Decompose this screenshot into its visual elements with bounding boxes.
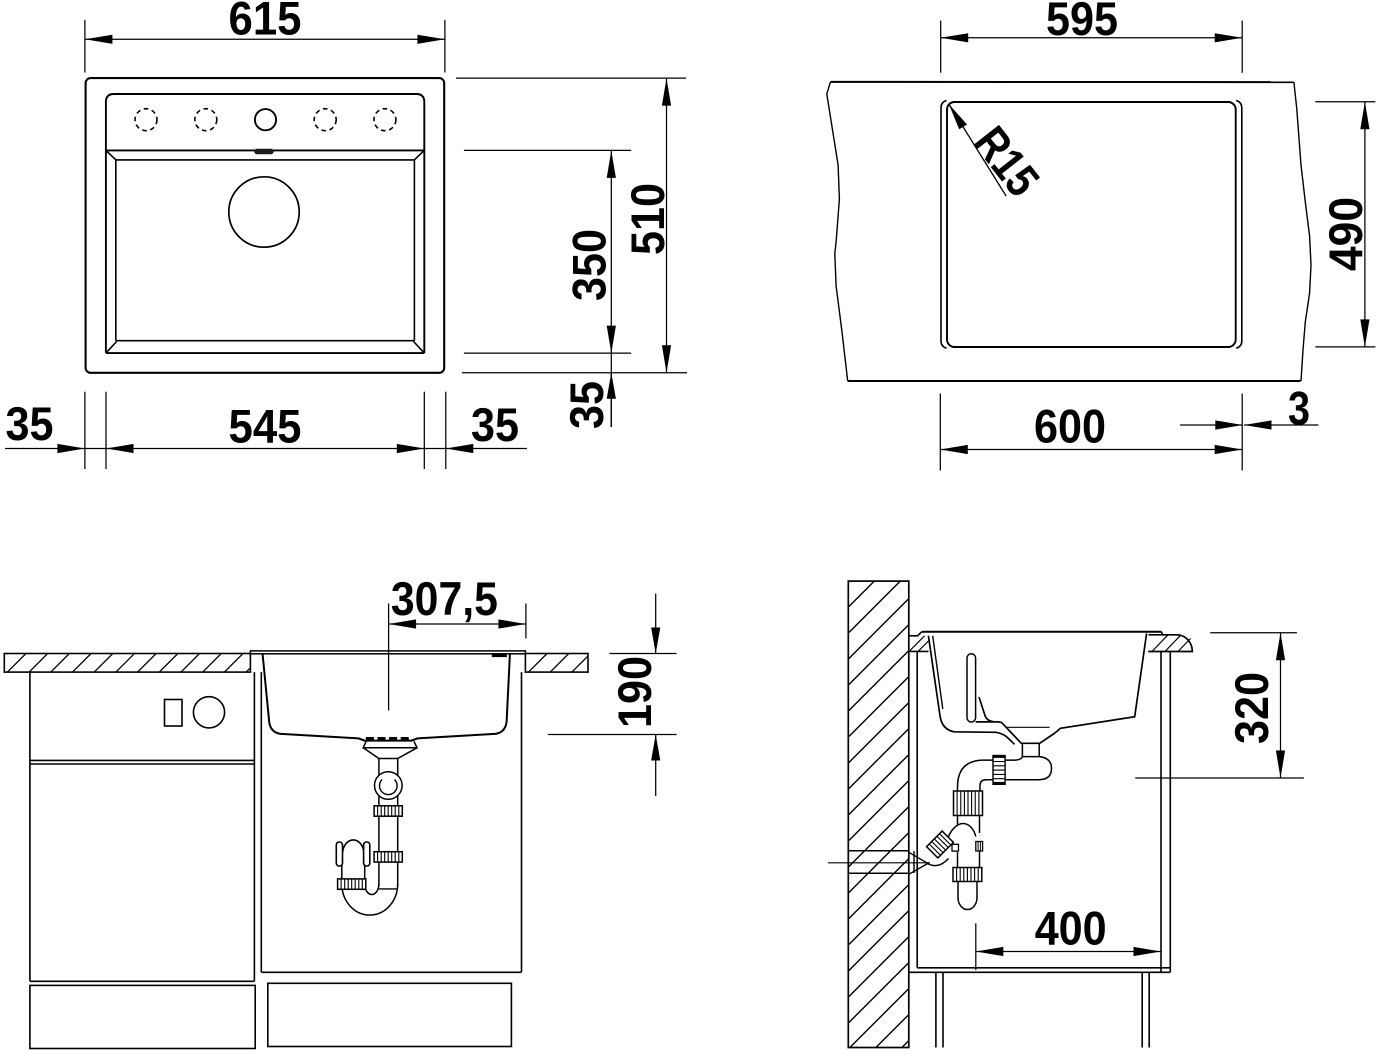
svg-text:510: 510 [621, 183, 674, 255]
svg-text:400: 400 [1035, 901, 1107, 954]
svg-text:35: 35 [471, 398, 519, 451]
svg-text:595: 595 [1046, 0, 1118, 45]
svg-text:307,5: 307,5 [391, 572, 498, 625]
svg-text:35: 35 [6, 397, 54, 450]
svg-text:R15: R15 [964, 116, 1050, 205]
svg-text:545: 545 [229, 400, 302, 453]
svg-text:320: 320 [1225, 672, 1278, 744]
svg-text:35: 35 [560, 381, 613, 429]
svg-text:350: 350 [563, 229, 616, 301]
svg-text:615: 615 [229, 0, 302, 44]
svg-text:490: 490 [1319, 197, 1372, 271]
svg-text:600: 600 [1034, 400, 1106, 453]
svg-text:3: 3 [1288, 381, 1310, 434]
svg-text:190: 190 [608, 656, 661, 728]
